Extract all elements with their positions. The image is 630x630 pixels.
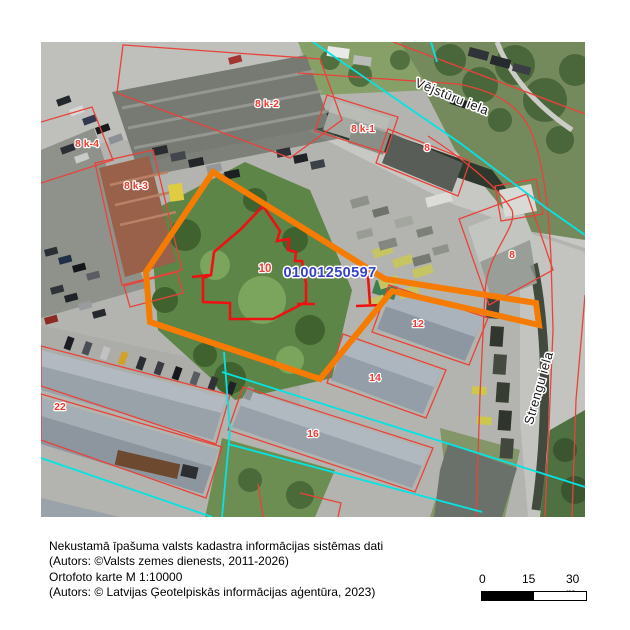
scalebar-bar-filled-half	[482, 592, 534, 600]
parcel-label-8-street: 8	[424, 142, 430, 154]
parcel-label-16: 16	[307, 428, 319, 440]
attribution-line-2: (Autors: ©Valsts zemes dienests, 2011-20…	[49, 554, 383, 569]
scalebar-tick-0: 0	[479, 572, 486, 586]
parcel-label-8k3: 8 k-3	[124, 180, 148, 192]
attribution-line-4: (Autors: © Latvijas Ģeotelpiskās informā…	[49, 585, 383, 600]
parcel-label-14: 14	[369, 372, 381, 384]
attribution-text: Nekustamā īpašuma valsts kadastra inform…	[49, 539, 383, 601]
parcel-label-12: 12	[412, 318, 424, 330]
parcel-label-8-east: 8	[509, 249, 515, 261]
map-viewport: Vējstūru iela Strengu iela 8 k-2 8 k-1 8…	[41, 42, 585, 517]
scalebar-bar	[481, 591, 587, 601]
cadastral-map-page: Vējstūru iela Strengu iela 8 k-2 8 k-1 8…	[0, 0, 630, 630]
parcel-label-8k4: 8 k-4	[75, 138, 99, 150]
parcel-label-22: 22	[54, 401, 66, 413]
parcel-label-10: 10	[259, 263, 272, 275]
parcel-label-8k2: 8 k-2	[255, 98, 279, 110]
cadastral-number-label: 01001250597	[283, 265, 376, 281]
scalebar-tick-15: 15	[522, 572, 535, 586]
parcel-label-8k1: 8 k-1	[351, 123, 375, 135]
attribution-line-3: Ortofoto karte M 1:10000	[49, 570, 383, 585]
attribution-line-1: Nekustamā īpašuma valsts kadastra inform…	[49, 539, 383, 554]
map-canvas: Vējstūru iela Strengu iela 8 k-2 8 k-1 8…	[41, 42, 585, 517]
